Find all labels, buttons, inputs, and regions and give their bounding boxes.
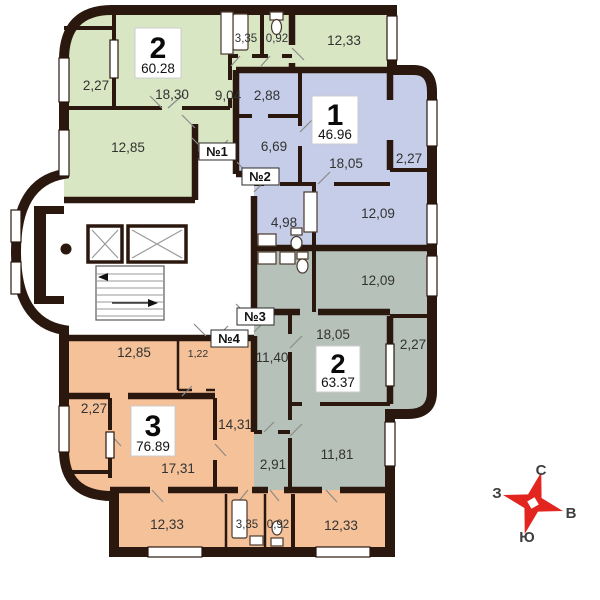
label-gray-bedroom: 11,81 [321,447,354,462]
bay-stub-wall-bottom [34,296,64,304]
wardrobe-green-hall [221,12,233,54]
entrance-4-label: №4 [218,331,240,346]
sink-gray-2 [280,252,295,264]
staircase [96,266,164,320]
compass-south-label: Ю [519,529,534,546]
label-green-bedroom: 12,85 [111,140,145,155]
balcony-door-orange-living [106,432,114,458]
label-orange-closet: 1,22 [188,348,209,360]
apt-blue-area: 46.96 [318,127,352,142]
label-gray-living: 18,05 [316,327,350,342]
window-gray-kitchen [427,256,437,296]
label-gray-hall: 11,40 [256,350,289,365]
window-gray-bedroom [385,422,395,466]
label-blue-entry: 2,88 [254,88,280,103]
label-orange-bath: 3,35 [236,519,258,531]
balcony-door-green-living [110,40,118,78]
sink-gray-1 [258,252,276,264]
label-green-kitchen: 12,33 [327,33,361,48]
toilet-tank-orange [271,538,283,546]
label-green-living: 18,30 [155,87,189,102]
window-green-balcony [59,58,69,102]
window-bay-1 [11,210,21,242]
label-blue-kitchen: 12,09 [361,206,395,221]
window-bay-2 [11,262,21,294]
toilet-tank-gray [297,252,308,259]
window-green-kitchen [387,16,397,60]
apt-gray-area: 63.37 [321,375,355,390]
label-blue-bath: 4,98 [271,215,297,230]
label-orange-hall: 14,31 [218,417,252,432]
label-green-wc: 0,92 [266,33,288,45]
label-orange-bedroom1: 12,85 [117,345,151,360]
entrance-1-label: №1 [206,144,228,159]
trash-chute [61,244,72,255]
entrance-2-label: №2 [249,169,271,184]
label-blue-living: 18,05 [329,156,363,171]
balcony-door-gray-living [386,344,394,386]
sink-blue-bath [258,234,276,246]
compass-east-label: В [566,505,577,522]
window-orange-balcony [59,406,69,452]
apt-green-area: 60.28 [141,61,175,76]
toilet-bowl-gray [297,259,308,273]
floor-plan-drawing: 2,27 18,30 12,85 9,04 3,35 0,92 12,33 2,… [0,0,600,600]
label-gray-balcony: 2,27 [400,337,426,352]
entrance-3-label: №3 [244,309,266,324]
toilet-bowl-blue [291,237,302,250]
window-orange-bedroom2 [148,547,202,557]
shower-column-blue [304,192,317,232]
label-orange-balcony: 2,27 [81,401,107,416]
label-gray-bath: 2,91 [260,457,286,472]
toilet-tank-green [270,12,283,20]
label-gray-kitchen: 12,09 [361,273,395,288]
compass-west-label: З [492,485,501,502]
label-orange-bedroom2: 12,33 [150,517,184,532]
floor-plan-page: 2,27 18,30 12,85 9,04 3,35 0,92 12,33 2,… [0,0,600,600]
label-orange-wc: 0,92 [267,519,289,531]
apt-orange-area: 76.89 [136,439,170,454]
compass-north-label: С [536,462,547,479]
elevator-block [88,226,186,262]
bay-stub-wall-top [34,206,64,214]
label-blue-balcony: 2,27 [396,151,422,166]
label-orange-kitchen: 12,33 [324,518,358,533]
label-green-hall: 9,04 [215,88,242,103]
window-blue-kitchen [427,204,437,244]
label-green-balcony: 2,27 [83,78,109,93]
sink-orange [250,536,263,545]
compass-rose: С З В Ю [492,462,576,546]
label-blue-hall: 6,69 [261,139,287,154]
bay-interior-wall [34,210,46,304]
label-orange-living: 17,31 [161,461,195,476]
window-blue-balcony [427,100,437,146]
label-green-bath: 3,35 [235,33,257,45]
window-orange-kitchen [316,547,370,557]
window-green-bedroom [59,130,69,176]
